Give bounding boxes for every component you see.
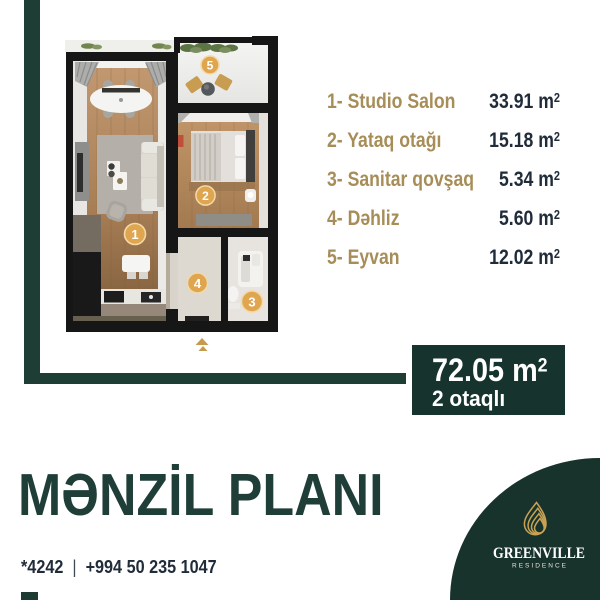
svg-text:5: 5: [207, 59, 214, 73]
svg-text:2: 2: [202, 189, 209, 203]
svg-text:1: 1: [131, 227, 138, 242]
svg-text:4: 4: [194, 276, 202, 291]
svg-text:3: 3: [248, 295, 255, 310]
svg-text:RESIDENCE: RESIDENCE: [512, 563, 567, 570]
svg-text:GREENVILLE: GREENVILLE: [493, 545, 585, 562]
